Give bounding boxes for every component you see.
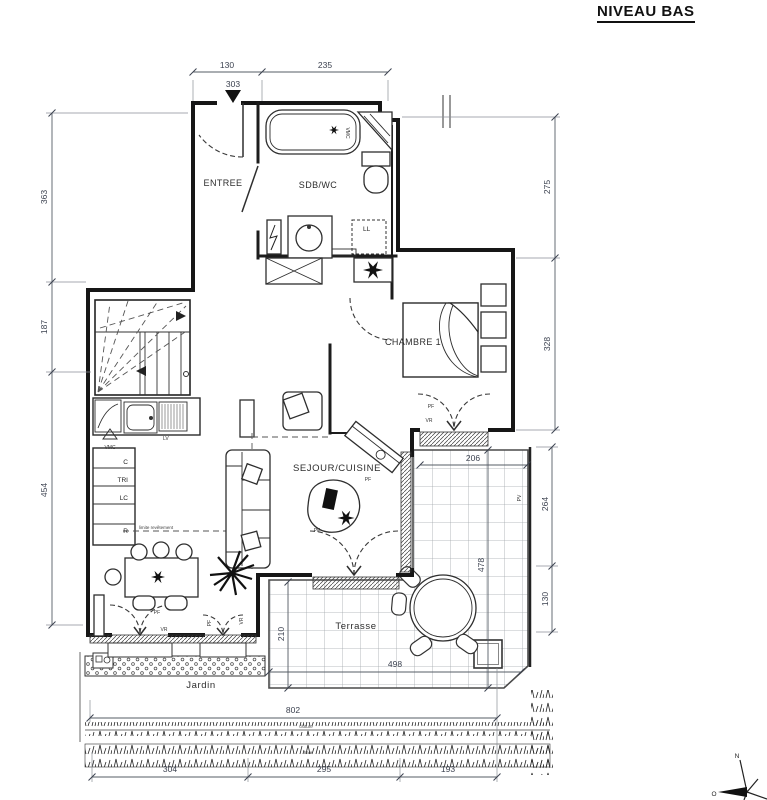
room-label-entree: ENTREE xyxy=(204,178,243,188)
tall-cabinet xyxy=(240,400,254,437)
vmc-label-kitchen: VMC xyxy=(104,445,116,451)
dishwasher-label: LV xyxy=(163,436,169,442)
appliance-label-c: C xyxy=(123,459,128,466)
vr-label: VR xyxy=(239,617,245,624)
flooring-limit-label: limite revêtement xyxy=(139,525,174,530)
dining-chair xyxy=(165,596,187,610)
compass-rose: N O xyxy=(711,753,767,800)
vr-label: VR xyxy=(426,418,433,424)
dim-bottom-304: 304 xyxy=(163,764,177,774)
dim-bottom-295: 295 xyxy=(317,764,331,774)
washing-machine-label: LL xyxy=(363,226,371,233)
staircase xyxy=(95,300,190,395)
bathroom-door-leaf xyxy=(242,166,258,212)
dim-terrace-478: 478 xyxy=(476,558,486,572)
floor-plan: ENTREE SDB/WC CHAMBRE 1 SEJOUR/CUISINE T… xyxy=(0,0,767,800)
floor-plan-page: NIVEAU BAS xyxy=(0,0,767,800)
pf-label: PF xyxy=(314,528,320,534)
dim-entry-303: 303 xyxy=(226,79,240,89)
hedge-label: haie xyxy=(304,750,313,755)
dim-top-235: 235 xyxy=(318,60,332,70)
dim-top-130: 130 xyxy=(220,60,234,70)
compass-north-label: N xyxy=(735,753,740,760)
compass-west-arm xyxy=(718,787,747,797)
fence-label: clôture xyxy=(299,724,313,729)
dim-left-363: 363 xyxy=(39,190,49,204)
appliance-label-r: R xyxy=(123,528,128,535)
appliance-column xyxy=(93,448,135,545)
sofa-pillow xyxy=(241,531,261,551)
vr-label: VR xyxy=(161,627,168,633)
bathroom-fixtures xyxy=(266,110,392,284)
door-sill xyxy=(108,643,172,657)
bedroom-furniture xyxy=(403,284,506,377)
headboard-shelf xyxy=(481,284,506,306)
dim-terrace-210: 210 xyxy=(276,627,286,641)
terrace-chair xyxy=(391,592,407,615)
dim-bottom-193: 193 xyxy=(441,764,455,774)
room-label-chambre: CHAMBRE 1 xyxy=(385,337,441,347)
dining-chair xyxy=(131,544,147,560)
wc-icon xyxy=(364,166,388,193)
appliance-label-tri: TRI xyxy=(118,477,129,484)
dining-chair xyxy=(176,544,192,560)
nightstand xyxy=(481,312,506,338)
radiator xyxy=(94,595,104,636)
dim-total-802: 802 xyxy=(286,705,300,715)
room-label-jardin: Jardin xyxy=(186,680,215,691)
pf-label: PF xyxy=(365,477,371,483)
door-sill xyxy=(200,643,246,657)
compass-west-label: O xyxy=(711,791,716,798)
dining-chair xyxy=(105,569,121,585)
dim-terrace-206: 206 xyxy=(466,453,480,463)
nightstand xyxy=(481,346,506,372)
terrace xyxy=(269,447,530,688)
kitchen-counter xyxy=(93,398,200,435)
dining-chair xyxy=(133,596,155,610)
dim-right-328: 328 xyxy=(542,337,552,351)
pv-label: PV xyxy=(517,494,523,501)
room-label-sdb-wc: SDB/WC xyxy=(299,180,338,190)
bedroom-door-arc xyxy=(350,298,392,340)
dim-terrace-130: 130 xyxy=(540,592,550,606)
terrace-round-table xyxy=(410,575,476,641)
dim-terrace-264: 264 xyxy=(540,497,550,511)
pf-label: PF xyxy=(154,610,160,616)
pf-label: PF xyxy=(428,404,434,410)
room-label-terrasse: Terrasse xyxy=(335,621,376,632)
dim-terrace-498: 498 xyxy=(388,659,402,669)
pf-label: PF xyxy=(207,620,213,626)
vmc-label-bath: VMC xyxy=(344,127,350,139)
room-label-sejour-cuisine: SEJOUR/CUISINE xyxy=(293,463,381,474)
dining-chair xyxy=(153,542,169,558)
appliance-label-lc: LC xyxy=(120,495,129,502)
corner-shelf xyxy=(358,112,392,150)
dim-right-275: 275 xyxy=(542,180,552,194)
hedge-band-right xyxy=(531,690,553,775)
fence-tufts xyxy=(85,722,550,736)
dim-left-187: 187 xyxy=(39,320,49,334)
entry-level-marker xyxy=(225,90,241,103)
dim-left-454: 454 xyxy=(39,483,49,497)
wc-cistern xyxy=(362,152,390,166)
